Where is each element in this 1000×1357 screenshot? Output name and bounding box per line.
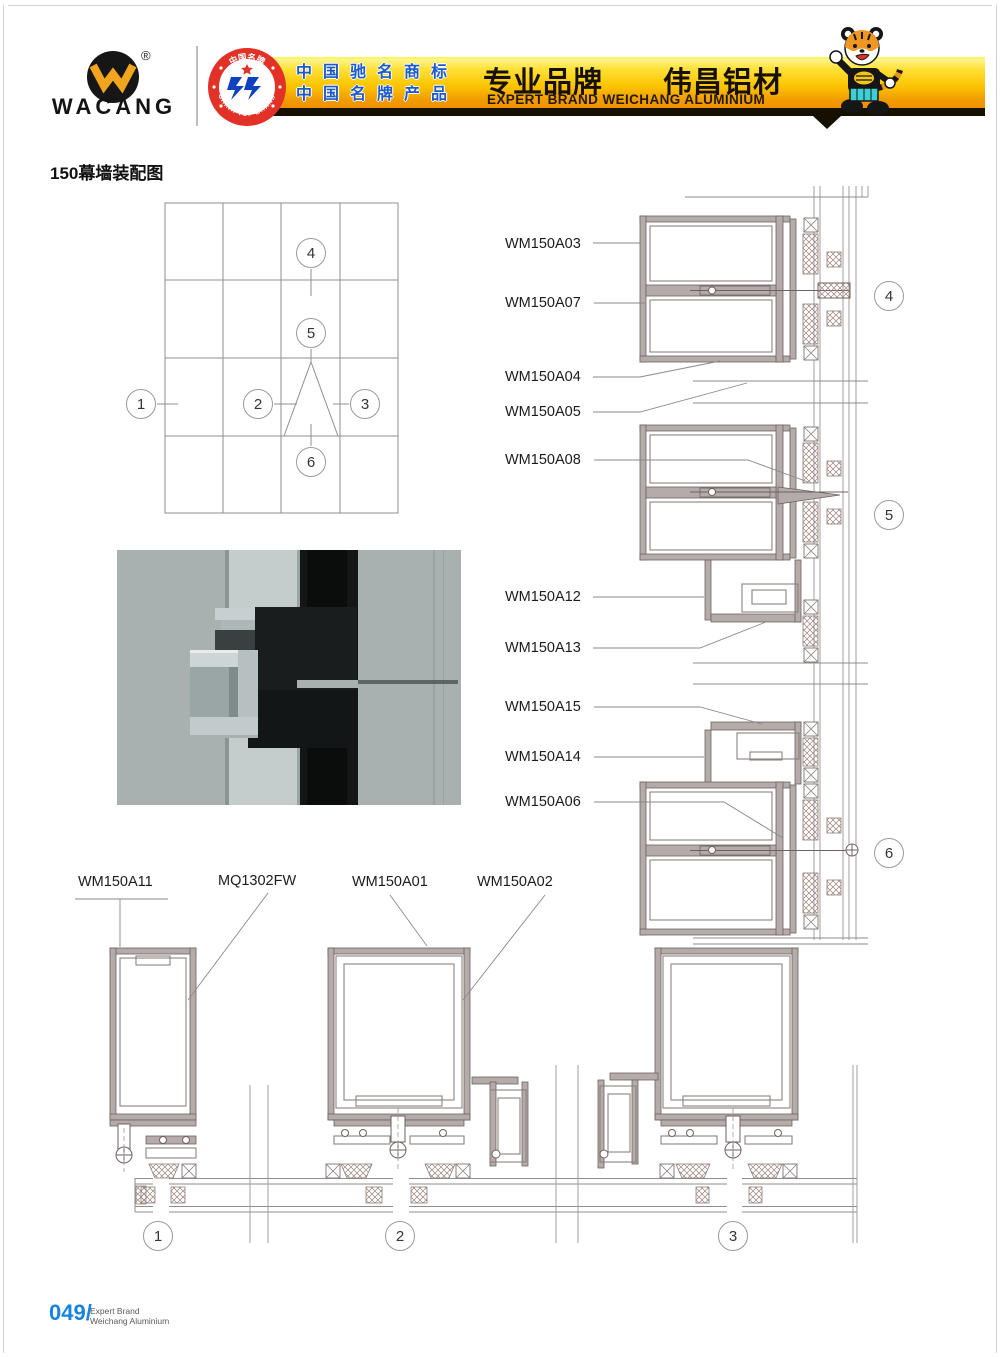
glass-joint-lines-bottom	[250, 1065, 857, 1243]
part-label: MQ1302FW	[218, 873, 296, 889]
detail-callout-5: 5	[874, 500, 904, 530]
catalog-page: ® WACANG 中国名牌 CHINA TOP BRAND 中国驰名商标中国名牌…	[0, 0, 1000, 1357]
page-title: 150幕墙装配图	[50, 159, 163, 184]
part-label: WM150A06	[505, 794, 581, 810]
part-label: WM150A13	[505, 640, 581, 656]
part-label: WM150A07	[505, 295, 581, 311]
grid-callout-6: 6	[296, 447, 326, 477]
part-label: WM150A15	[505, 699, 581, 715]
detail-callout-6: 6	[874, 838, 904, 868]
part-label: WM150A04	[505, 369, 581, 385]
part-label: WM150A14	[505, 749, 581, 765]
detail-callout-3: 3	[718, 1221, 748, 1251]
grid-callout-1: 1	[126, 389, 156, 419]
profile-photo	[117, 550, 461, 805]
section-detail-3	[598, 948, 798, 1168]
banner-notch	[813, 116, 841, 129]
part-label: WM150A12	[505, 589, 581, 605]
part-label: WM150A11	[78, 874, 153, 890]
part-label: WM150A03	[505, 236, 581, 252]
banner-claims: 中国驰名商标中国名牌产品	[296, 62, 458, 106]
registered-mark: ®	[141, 48, 151, 63]
section-detail-1	[110, 948, 196, 1144]
gaskets-right	[803, 218, 841, 929]
claim-line1: 中国驰名商标	[296, 64, 458, 81]
section-detail-6	[640, 722, 801, 935]
footer-text: Expert Brand Weichang Aluminium	[90, 1306, 169, 1326]
detail-callout-4: 4	[874, 281, 904, 311]
banner-subtitle: EXPERT BRAND WEICHANG ALUMINIUM	[487, 92, 765, 107]
tiger-mascot-icon	[812, 24, 916, 116]
grid-callout-4: 4	[296, 238, 326, 268]
brand-name: WACANG	[44, 94, 184, 120]
detail-callout-1: 1	[143, 1221, 173, 1251]
detail-callout-2: 2	[385, 1221, 415, 1251]
part-label: WM150A01	[352, 874, 428, 890]
part-label: WM150A05	[505, 404, 581, 420]
grid-callout-5: 5	[296, 318, 326, 348]
china-top-brand-badge-icon: 中国名牌 CHINA TOP BRAND	[205, 44, 289, 130]
page-number: 049/	[49, 1300, 92, 1326]
grid-callout-3: 3	[350, 389, 380, 419]
section-detail-4	[640, 216, 796, 362]
footer-line2: Weichang Aluminium	[90, 1316, 169, 1326]
header-divider	[196, 46, 198, 126]
claim-line2: 中国名牌产品	[296, 86, 458, 103]
footer-line1: Expert Brand	[90, 1306, 169, 1316]
elevation-grid-diagram	[157, 203, 398, 513]
part-label: WM150A08	[505, 452, 581, 468]
grid-callout-2: 2	[243, 389, 273, 419]
part-label: WM150A02	[477, 874, 553, 890]
